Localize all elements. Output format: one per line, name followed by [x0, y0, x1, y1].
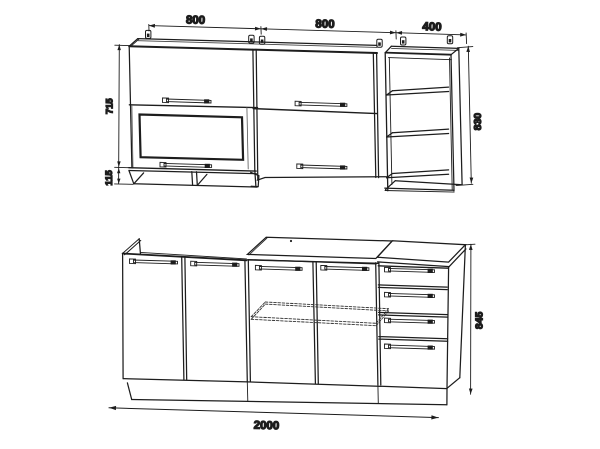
- svg-text:400: 400: [422, 21, 442, 34]
- svg-text:800: 800: [186, 14, 206, 27]
- svg-text:715: 715: [105, 98, 116, 115]
- svg-text:2000: 2000: [254, 420, 280, 433]
- svg-text:800: 800: [315, 18, 335, 31]
- svg-text:115: 115: [104, 170, 115, 186]
- svg-text:830: 830: [472, 113, 484, 131]
- svg-text:845: 845: [474, 311, 486, 329]
